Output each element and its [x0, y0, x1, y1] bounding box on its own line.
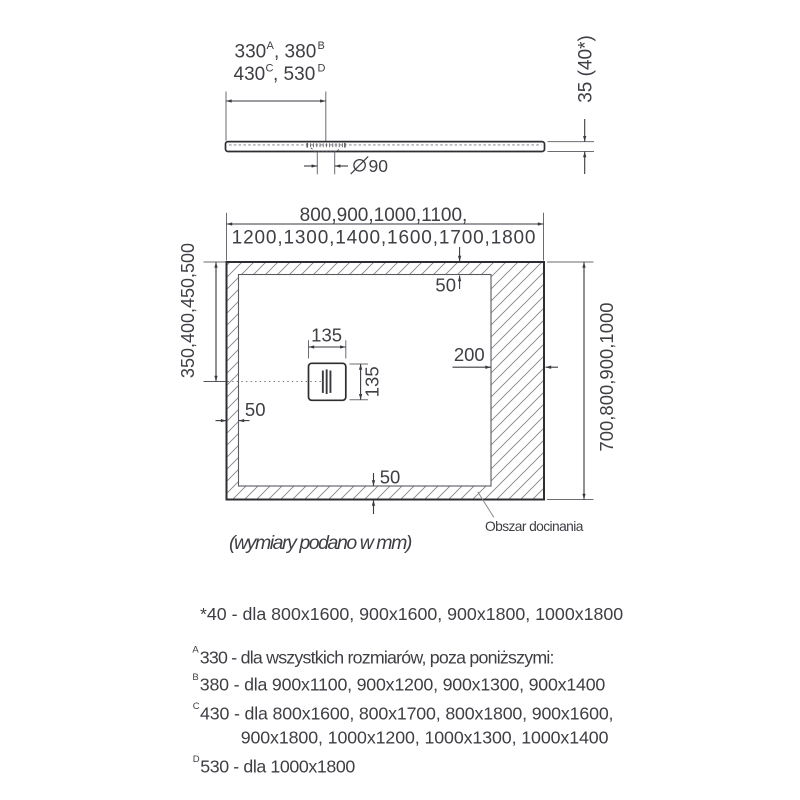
svg-text:135: 135	[311, 324, 342, 345]
svg-text:50: 50	[380, 467, 401, 488]
svg-text:B: B	[318, 40, 325, 52]
svg-text:, 530: , 530	[273, 64, 315, 85]
svg-text:50: 50	[245, 399, 266, 420]
svg-text:135: 135	[362, 366, 383, 397]
svg-text:380 - dla 900x1100, 900x1200,: 380 - dla 900x1100, 900x1200, 900x1300, …	[200, 674, 606, 694]
svg-text:Obszar docinania: Obszar docinania	[485, 519, 584, 534]
svg-text:*40 - dla 800x1600, 900x1600,: *40 - dla 800x1600, 900x1600, 900x1800, …	[200, 604, 623, 624]
svg-text:330 - dla wszystkich rozmiarów: 330 - dla wszystkich rozmiarów, poza pon…	[200, 648, 554, 668]
svg-text:90: 90	[369, 156, 389, 176]
svg-text:B: B	[192, 672, 198, 683]
svg-text:800,900,1000,1100,: 800,900,1000,1100,	[300, 205, 468, 226]
svg-text:1200,1300,1400,1600,1700,1800: 1200,1300,1400,1600,1700,1800	[232, 228, 537, 249]
svg-text:330: 330	[235, 42, 267, 63]
svg-text:350,400,450,500: 350,400,450,500	[178, 243, 198, 378]
svg-text:430 - dla 800x1600, 800x1700,: 430 - dla 800x1600, 800x1700, 800x1800, …	[200, 703, 613, 723]
svg-text:, 380: , 380	[274, 42, 316, 63]
svg-text:35 (40*): 35 (40*)	[575, 35, 596, 103]
svg-text:C: C	[193, 701, 200, 712]
svg-text:700,800,900,1000: 700,800,900,1000	[596, 302, 617, 451]
svg-text:900x1800, 1000x1200, 1000x1300: 900x1800, 1000x1200, 1000x1300, 1000x140…	[241, 727, 609, 747]
svg-text:A: A	[192, 644, 199, 655]
svg-text:530 - dla 1000x1800: 530 - dla 1000x1800	[200, 756, 355, 776]
svg-text:D: D	[193, 754, 200, 765]
svg-text:50: 50	[435, 275, 456, 296]
svg-text:D: D	[318, 62, 326, 74]
svg-text:(wymiary podano w mm): (wymiary podano w mm)	[229, 532, 412, 554]
svg-text:200: 200	[454, 344, 485, 365]
svg-text:430: 430	[234, 64, 266, 85]
